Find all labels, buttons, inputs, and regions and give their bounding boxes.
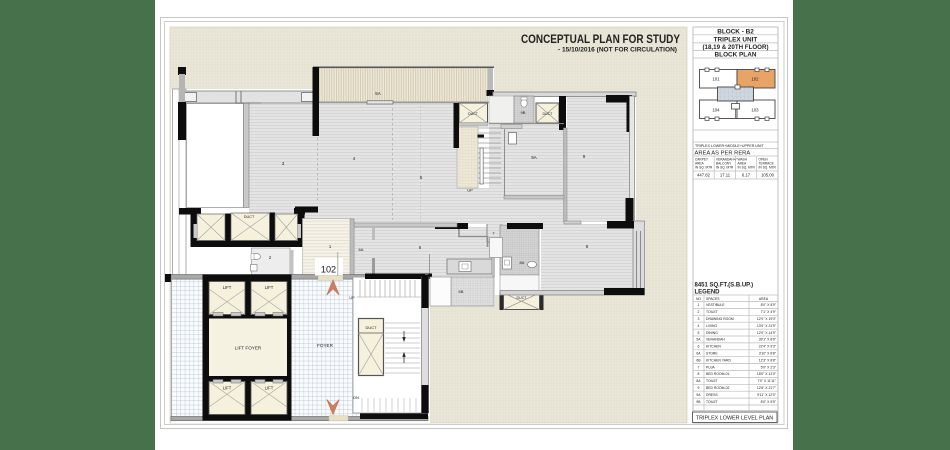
svg-text:TRIPLEX UNIT: TRIPLEX UNIT [714, 36, 758, 43]
svg-text:6: 6 [698, 345, 700, 349]
svg-text:KITCHEN YARD: KITCHEN YARD [706, 358, 731, 362]
svg-text:5A: 5A [375, 91, 381, 96]
svg-text:12'3" X 8'8": 12'3" X 8'8" [759, 358, 777, 362]
svg-text:LIFT FOYER: LIFT FOYER [235, 346, 262, 351]
svg-text:103: 103 [751, 108, 759, 113]
svg-text:BLOCK - B2: BLOCK - B2 [717, 28, 754, 35]
svg-text:3: 3 [698, 317, 700, 321]
svg-text:9B: 9B [521, 110, 526, 115]
svg-text:22'4" X 9'3": 22'4" X 9'3" [759, 345, 777, 349]
svg-text:8A: 8A [520, 260, 525, 265]
svg-text:BED ROOM-02: BED ROOM-02 [706, 386, 729, 390]
svg-text:39'1" X 8'6": 39'1" X 8'6" [759, 338, 777, 342]
svg-text:18'0" X 12'0": 18'0" X 12'0" [757, 372, 777, 376]
svg-text:8'0" X 8'9": 8'0" X 8'9" [761, 303, 777, 307]
svg-text:9'11" X 12'0": 9'11" X 12'0" [757, 393, 777, 397]
svg-text:DUCT: DUCT [517, 296, 528, 300]
svg-text:104: 104 [712, 108, 720, 113]
svg-text:9A: 9A [696, 393, 701, 397]
svg-text:8: 8 [698, 372, 700, 376]
svg-text:9: 9 [698, 386, 700, 390]
svg-text:17.11: 17.11 [720, 173, 731, 178]
svg-text:BLOCK PLAN: BLOCK PLAN [715, 52, 757, 59]
svg-text:12'0" X 19'3": 12'0" X 19'3" [757, 317, 777, 321]
svg-text:LIFT: LIFT [265, 386, 274, 391]
svg-text:5'0" X 2'3": 5'0" X 2'3" [761, 365, 777, 369]
svg-text:7'0" X 11'11": 7'0" X 11'11" [757, 379, 776, 383]
svg-text:12'0" X 14'9": 12'0" X 14'9" [757, 331, 777, 335]
svg-text:7'1" X 4'9": 7'1" X 4'9" [761, 310, 777, 314]
svg-text:8451 SQ.FT.(S.B.UP.): 8451 SQ.FT.(S.B.UP.) [695, 283, 754, 289]
svg-text:(18,19 & 20TH FLOOR): (18,19 & 20TH FLOOR) [702, 44, 768, 51]
svg-text:- 15/10/2016 (NOT FOR CIRCULAT: - 15/10/2016 (NOT FOR CIRCULATION) [558, 47, 677, 54]
svg-text:AREA AS PER RERA: AREA AS PER RERA [695, 151, 751, 157]
svg-text:13'0" X 21'9": 13'0" X 21'9" [757, 324, 777, 328]
svg-text:6A: 6A [696, 352, 701, 356]
svg-text:TRIPLEX LOWER LEVEL PLAN: TRIPLEX LOWER LEVEL PLAN [696, 416, 773, 422]
svg-text:TOILET: TOILET [706, 400, 718, 404]
svg-text:3'10" X 8'8": 3'10" X 8'8" [759, 352, 777, 356]
svg-text:8A: 8A [696, 379, 701, 383]
svg-text:AREA: AREA [759, 297, 769, 301]
svg-text:IN SQ. MTR: IN SQ. MTR [759, 166, 777, 170]
svg-text:DN: DN [353, 396, 359, 400]
svg-text:5: 5 [698, 331, 700, 335]
svg-text:STORE: STORE [706, 352, 718, 356]
svg-text:DUCT: DUCT [365, 325, 377, 330]
svg-text:DUCT: DUCT [543, 112, 554, 116]
svg-text:DRESS: DRESS [706, 393, 718, 397]
svg-text:KITCHEN: KITCHEN [706, 345, 721, 349]
svg-text:IN SQ. MTR: IN SQ. MTR [695, 166, 713, 170]
svg-text:6B: 6B [696, 358, 701, 362]
svg-text:SPACES: SPACES [706, 297, 720, 301]
svg-text:9B: 9B [696, 400, 701, 404]
svg-text:TOILET: TOILET [706, 379, 718, 383]
svg-text:5A: 5A [696, 338, 701, 342]
svg-text:UP: UP [467, 188, 473, 193]
svg-text:IN SQ. MTR: IN SQ. MTR [738, 166, 756, 170]
svg-text:VERANDAH: VERANDAH [706, 338, 725, 342]
svg-text:LEGEND: LEGEND [695, 290, 721, 296]
svg-text:105.00: 105.00 [761, 173, 774, 178]
svg-text:LIVING: LIVING [706, 324, 717, 328]
svg-text:102: 102 [751, 77, 759, 82]
svg-text:6B: 6B [459, 289, 464, 294]
svg-text:CONCEPTUAL PLAN FOR STUDY: CONCEPTUAL PLAN FOR STUDY [521, 32, 680, 46]
svg-text:102: 102 [321, 264, 336, 274]
svg-text:DUCT: DUCT [244, 215, 255, 219]
svg-text:VESTIBULE: VESTIBULE [706, 303, 725, 307]
svg-text:IN SQ. MTR: IN SQ. MTR [716, 166, 734, 170]
svg-text:UP: UP [349, 296, 355, 300]
svg-text:101: 101 [712, 77, 720, 82]
svg-text:BED ROOM-01: BED ROOM-01 [706, 372, 729, 376]
svg-text:447.82: 447.82 [697, 173, 710, 178]
svg-text:PUJA: PUJA [706, 365, 715, 369]
svg-text:LIFT: LIFT [223, 285, 232, 290]
svg-text:NO: NO [696, 297, 701, 301]
svg-text:2: 2 [698, 310, 700, 314]
svg-text:12'6" X 21'7": 12'6" X 21'7" [757, 386, 777, 390]
svg-text:LIFT: LIFT [265, 285, 274, 290]
svg-text:LIFT: LIFT [223, 386, 232, 391]
svg-text:8'0" X 5'5": 8'0" X 5'5" [761, 400, 777, 404]
svg-text:1: 1 [698, 303, 700, 307]
svg-text:9A: 9A [531, 155, 537, 160]
svg-text:TOILET: TOILET [706, 310, 718, 314]
svg-text:4: 4 [698, 324, 700, 328]
svg-text:TRIPLEX LOWER+MIDDLE+UPPER UNI: TRIPLEX LOWER+MIDDLE+UPPER UNIT [695, 144, 765, 148]
svg-text:DRAWING ROOM: DRAWING ROOM [706, 317, 734, 321]
svg-text:DUCT: DUCT [468, 112, 479, 116]
svg-text:6A: 6A [359, 247, 364, 252]
svg-text:7: 7 [698, 365, 700, 369]
svg-text:DINING: DINING [706, 331, 718, 335]
svg-text:FOYER: FOYER [317, 343, 334, 348]
svg-text:6.17: 6.17 [742, 173, 751, 178]
